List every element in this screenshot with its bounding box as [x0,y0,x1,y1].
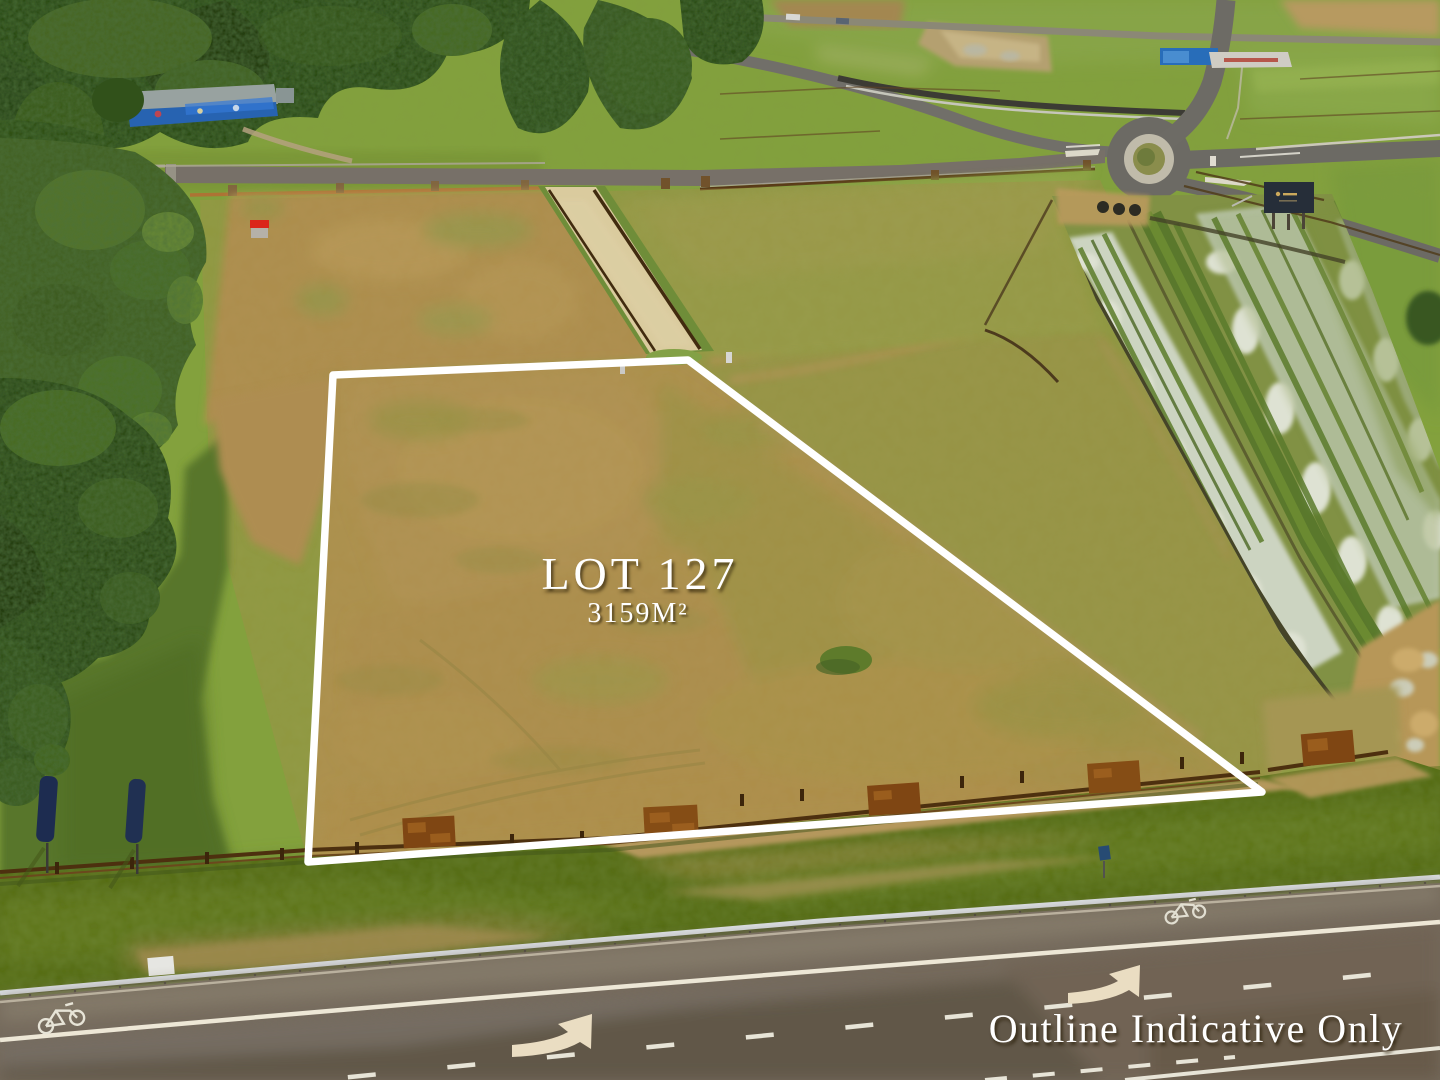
svg-text:LOT 127: LOT 127 [541,548,738,599]
svg-text:3159M²: 3159M² [587,598,688,629]
svg-text:Outline Indicative Only: Outline Indicative Only [989,1006,1403,1051]
